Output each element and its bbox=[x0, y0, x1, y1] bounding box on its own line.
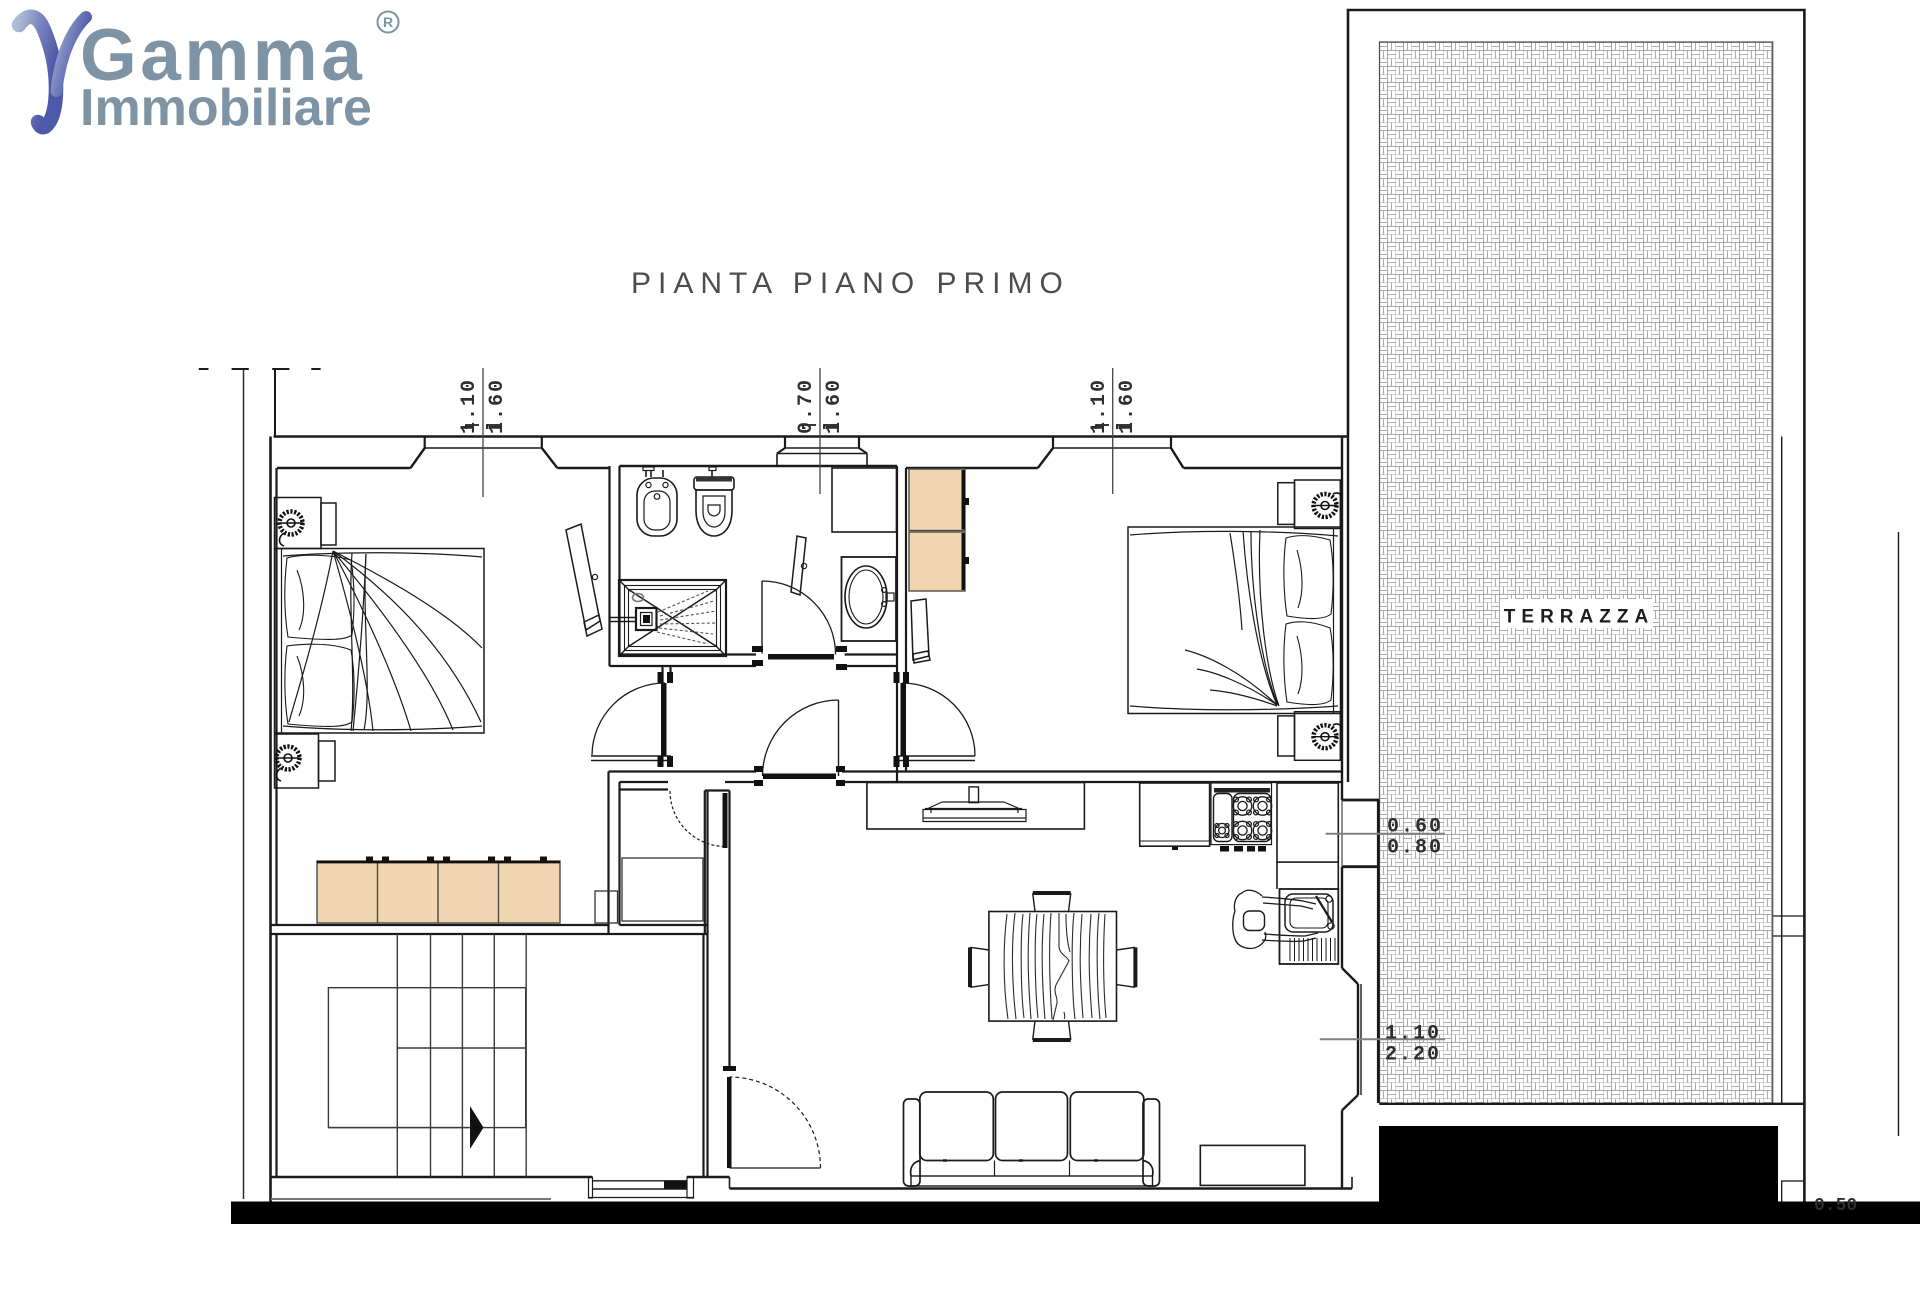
svg-text:1.10: 1.10 bbox=[1385, 1023, 1441, 1046]
svg-text:1.10: 1.10 bbox=[458, 378, 481, 434]
svg-text:0.70: 0.70 bbox=[795, 378, 818, 434]
svg-text:1.60: 1.60 bbox=[486, 378, 509, 434]
svg-text:Immobiliare: Immobiliare bbox=[80, 79, 372, 137]
svg-text:1.60: 1.60 bbox=[823, 378, 846, 434]
svg-text:0.80: 0.80 bbox=[1387, 837, 1443, 860]
svg-text:R: R bbox=[383, 14, 393, 30]
svg-text:2.20: 2.20 bbox=[1385, 1044, 1441, 1067]
svg-text:0.60: 0.60 bbox=[1387, 816, 1443, 839]
svg-text:1.60: 1.60 bbox=[1116, 378, 1139, 434]
svg-text:1.10: 1.10 bbox=[1088, 378, 1111, 434]
svg-text:0.50: 0.50 bbox=[1814, 1196, 1857, 1216]
svg-text:PIANTA PIANO PRIMO: PIANTA PIANO PRIMO bbox=[631, 267, 1070, 300]
svg-text:TERRAZZA: TERRAZZA bbox=[1504, 607, 1654, 628]
